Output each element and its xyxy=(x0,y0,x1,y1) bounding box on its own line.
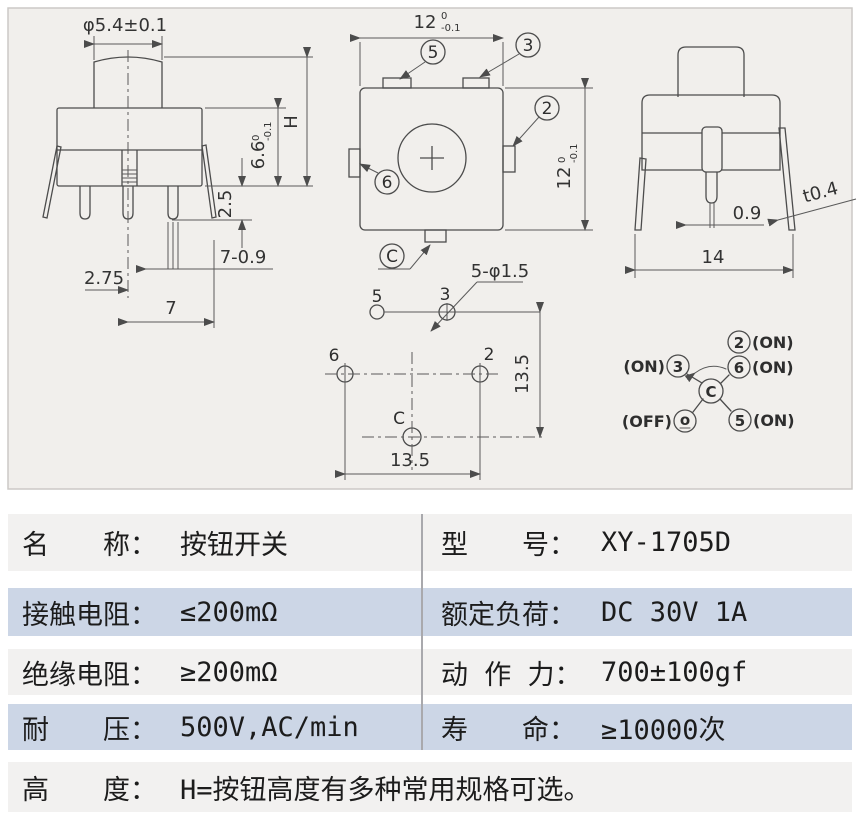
state-on-5: (ON) xyxy=(753,411,795,430)
circuit-node-6-label: 6 xyxy=(734,359,744,377)
table-row: 绝缘电阻： ≥200mΩ 动 作 力： 700±100gf xyxy=(8,649,852,695)
spec-label-insulation-resistance: 绝缘电阻： xyxy=(8,653,180,692)
table-row: 名 称： 按钮开关 型 号： XY-1705D xyxy=(8,514,852,571)
column-divider xyxy=(421,514,423,750)
spec-label-height: 高 度： xyxy=(8,768,180,807)
spec-value-operating-force: 700±100gf xyxy=(601,657,747,688)
dim-top-width-tol-upper: 0 xyxy=(441,11,447,22)
dim-pin-note: 7-0.9 xyxy=(220,247,267,268)
state-off: (OFF) xyxy=(622,412,672,431)
spec-value-contact-resistance: ≤200mΩ xyxy=(180,597,278,628)
callout-2-label: 2 xyxy=(542,99,553,119)
dim-pitch: 7 xyxy=(165,298,176,319)
spec-table: 名 称： 按钮开关 型 号： XY-1705D 接触电阻： ≤200mΩ 额定负… xyxy=(8,505,852,825)
dim-top-height-tol-lower: -0.1 xyxy=(569,143,580,163)
circuit-node-3-label: 3 xyxy=(673,358,683,376)
hole-label-2: 2 xyxy=(484,345,495,365)
table-row: 耐 压： 500V,AC/min 寿 命： ≥10000次 xyxy=(8,704,852,750)
spec-value-model: XY-1705D xyxy=(601,527,731,558)
spec-value-lifespan: ≥10000次 xyxy=(601,708,726,747)
dim-pin-length: 2.5 xyxy=(215,190,236,219)
spec-label-name: 名 称： xyxy=(8,523,180,562)
callout-5-label: 5 xyxy=(428,43,439,63)
dim-hole-spacing-h: 13.5 xyxy=(390,450,430,471)
dim-body-height-tol-lower: -0.1 xyxy=(263,121,274,141)
state-on-3: (ON) xyxy=(623,357,665,376)
state-on-2: (ON) xyxy=(752,333,794,352)
dim-body-height-tol-upper: 0 xyxy=(251,135,262,141)
spec-value-rated-load: DC 30V 1A xyxy=(601,597,747,628)
spec-label-rated-load: 额定负荷： xyxy=(422,593,601,632)
dim-body-height: 6.6 xyxy=(248,141,269,170)
dim-top-width-tol-lower: -0.1 xyxy=(441,23,461,34)
dim-button-diameter: φ5.4±0.1 xyxy=(83,15,167,36)
callout-3-label: 3 xyxy=(523,36,534,56)
dim-pin-width: 0.9 xyxy=(733,203,762,224)
dim-top-height: 12 xyxy=(554,167,575,190)
dim-pin-offset: 2.75 xyxy=(84,268,124,289)
spec-value-withstand-voltage: 500V,AC/min xyxy=(180,712,359,743)
circuit-node-5-label: 5 xyxy=(735,412,745,430)
hole-label-3: 3 xyxy=(440,285,451,305)
dim-overall-width: 14 xyxy=(702,247,725,268)
dim-top-height-tol-upper: 0 xyxy=(557,157,568,163)
table-row: 接触电阻： ≤200mΩ 额定负荷： DC 30V 1A xyxy=(8,588,852,636)
spec-label-operating-force: 动 作 力： xyxy=(422,653,601,692)
hole-size-note: 5-φ1.5 xyxy=(471,261,529,282)
spec-label-lifespan: 寿 命： xyxy=(422,708,601,747)
callout-6-label: 6 xyxy=(382,173,393,193)
spec-label-withstand-voltage: 耐 压： xyxy=(8,708,180,747)
spec-value-height: H=按钮高度有多种常用规格可选。 xyxy=(180,768,591,807)
spec-sheet-page: φ5.4±0.1 xyxy=(0,0,860,830)
hole-label-5: 5 xyxy=(372,287,383,307)
drawing-photo-background xyxy=(8,8,852,489)
spec-value-insulation-resistance: ≥200mΩ xyxy=(180,657,278,688)
hole-label-6: 6 xyxy=(329,346,340,366)
technical-drawing: φ5.4±0.1 xyxy=(0,0,860,500)
dim-hole-spacing-v: 13.5 xyxy=(512,354,533,394)
spec-label-contact-resistance: 接触电阻： xyxy=(8,593,180,632)
dim-overall-height: H xyxy=(281,115,302,129)
dim-top-width: 12 xyxy=(414,12,437,33)
table-row: 高 度： H=按钮高度有多种常用规格可选。 xyxy=(8,762,852,812)
circuit-center-label: C xyxy=(705,383,716,401)
hole-label-c: C xyxy=(393,409,405,429)
circuit-node-2-label: 2 xyxy=(734,334,744,352)
state-on-6: (ON) xyxy=(752,358,794,377)
spec-label-model: 型 号： xyxy=(422,523,601,562)
center-post-side xyxy=(702,127,722,172)
callout-c-label: C xyxy=(386,247,398,267)
circuit-node-off-label: o xyxy=(680,411,690,429)
spec-value-name: 按钮开关 xyxy=(180,523,288,562)
